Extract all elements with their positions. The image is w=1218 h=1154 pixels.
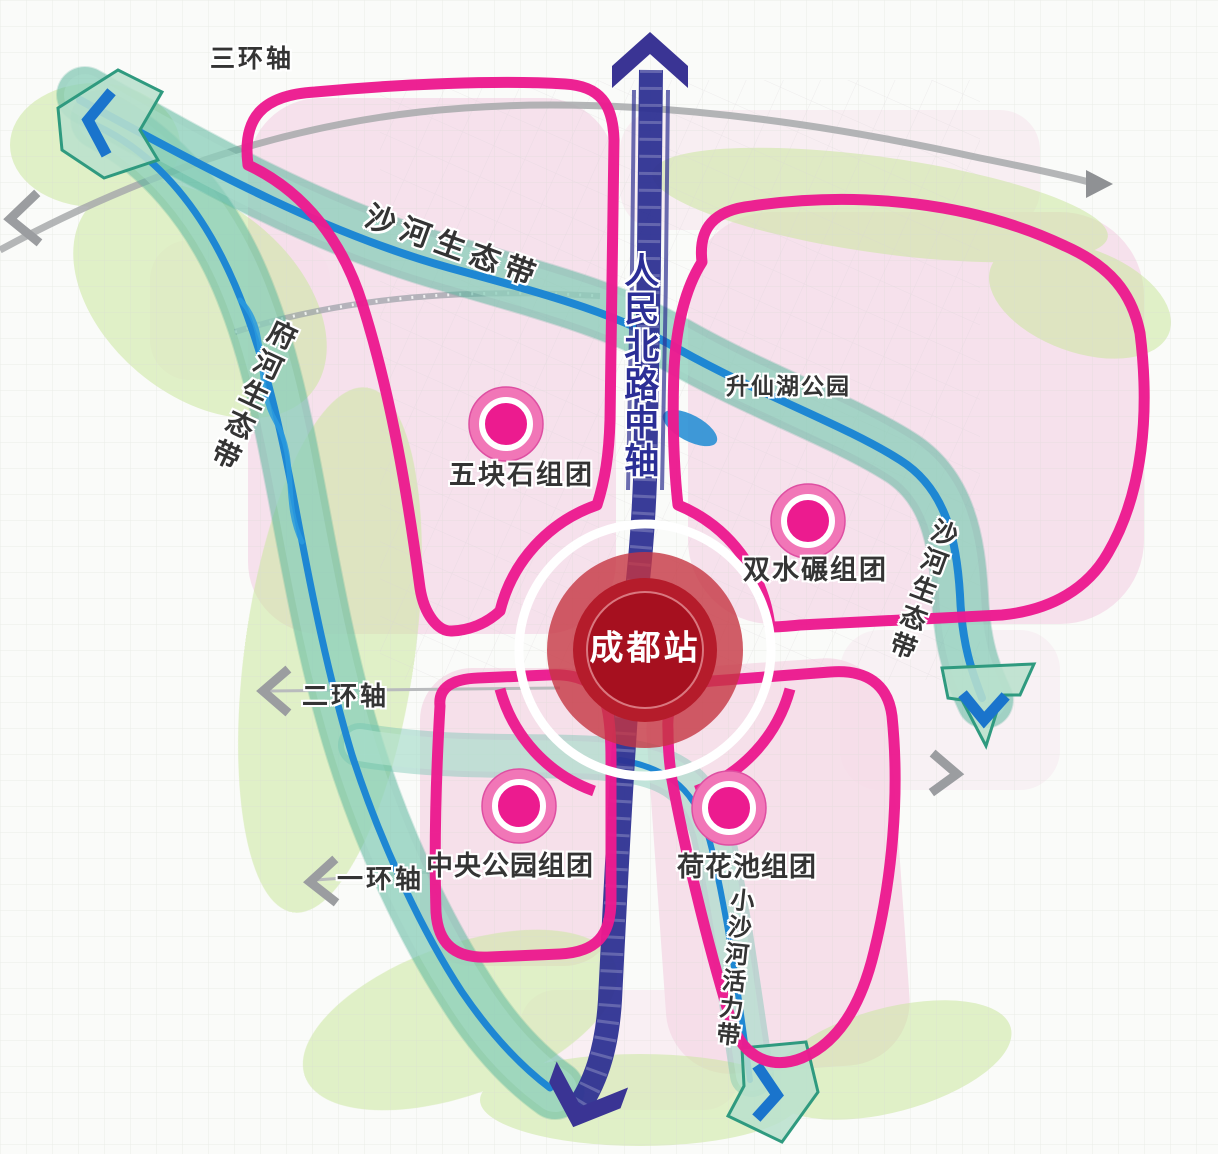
central-park-marker-icon [482, 769, 556, 843]
label-ring2-axis: 二环轴 [302, 683, 389, 713]
label-wukuaishi-cluster: 五块石组团 [449, 460, 594, 491]
label-central-axis: 人民北路中轴 [618, 252, 658, 480]
shuangshuinian-marker-icon [771, 484, 845, 558]
label-ring3-axis: 三环轴 [210, 45, 294, 74]
label-chengdu-station: 成都站 [590, 629, 701, 668]
planning-map: 三环轴 沙河生态带 府河生态带 人民北路中轴 升仙湖公园 五块石组团 双水碾组团… [0, 0, 1218, 1154]
label-central-park-cluster: 中央公园组团 [426, 851, 594, 882]
hehuachi-marker-icon [692, 771, 766, 845]
wukuaishi-marker-icon [469, 387, 543, 461]
label-hehuachi-cluster: 荷花池组团 [677, 852, 817, 883]
label-shengxianhu-park: 升仙湖公园 [726, 374, 851, 400]
label-ring1-axis: 一环轴 [337, 866, 424, 896]
label-shuangshuinian-cluster: 双水碾组团 [743, 555, 888, 586]
map-canvas [0, 0, 1218, 1154]
